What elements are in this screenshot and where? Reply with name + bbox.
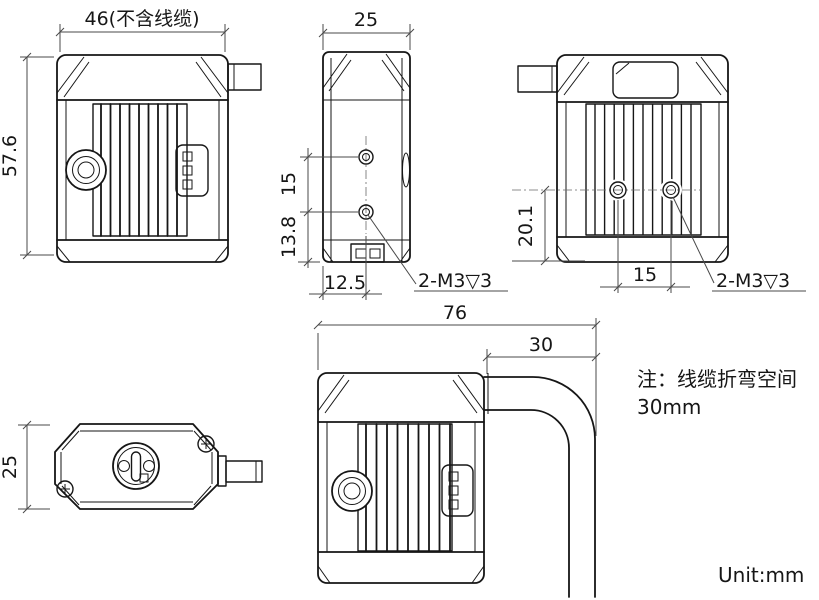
front-view: 46(不含线缆) 57.6 <box>0 8 261 262</box>
cable-bend-dim-label: 30 <box>529 334 553 356</box>
heatsink-fins <box>93 104 187 236</box>
cable-note-line2: 30mm <box>637 395 701 419</box>
hole-height-dim-label: 20.1 <box>515 205 537 247</box>
drawing-canvas: 46(不含线缆) 57.6 25 <box>0 0 819 600</box>
bottom-view: 25 15 13.8 12.5 2-M3▽3 <box>278 9 508 300</box>
dimension-drawing: 46(不含线缆) 57.6 25 <box>0 0 819 600</box>
side-view: 20.1 15 2-M3▽3 <box>512 55 806 293</box>
cable-connector-stub-left <box>518 66 557 92</box>
bottom-thread-callout: 2-M3▽3 <box>368 215 508 292</box>
cable-connector-stub <box>228 64 261 90</box>
top-depth-dim-label: 25 <box>0 455 21 479</box>
top-window <box>613 62 678 98</box>
side-pitch-dim-label: 15 <box>633 264 657 286</box>
cable-bend-dimension: 30 <box>483 334 600 374</box>
front-cable-view: 76 30 <box>314 302 600 597</box>
bottom-width-dim-label: 25 <box>354 9 378 31</box>
front-height-dim-label: 57.6 <box>0 135 21 177</box>
bottom-thread-label: 2-M3▽3 <box>418 270 492 292</box>
top-view: 25 <box>0 421 262 513</box>
front-width-dim-label: 46(不含线缆) <box>84 8 199 30</box>
overall-width-dim-label: 76 <box>443 302 467 324</box>
top-depth-dimension: 25 <box>0 421 50 513</box>
bottom-hole-chain-dimension: 15 13.8 <box>278 148 358 268</box>
mount-holes <box>359 150 373 219</box>
bottom-width-dimension: 25 <box>319 9 414 50</box>
lens-feature <box>66 150 106 190</box>
front-width-dimension: 46(不含线缆) <box>56 8 229 52</box>
unit-label: Unit:mm <box>718 563 804 587</box>
side-bump <box>403 153 410 187</box>
hole-pitch-dim-label: 15 <box>278 172 300 196</box>
center-dial-feature <box>113 443 159 489</box>
cable-connector-stub <box>218 456 262 486</box>
cable-note: 注：线缆折弯空间 30mm <box>637 367 797 419</box>
indicator-panel <box>442 465 473 516</box>
bottom-port <box>351 244 384 262</box>
top-view-body <box>55 424 262 509</box>
side-view-body <box>512 55 728 262</box>
lens-feature <box>332 471 372 511</box>
overall-width-dimension: 76 <box>314 302 600 436</box>
cable-note-line1: 注：线缆折弯空间 <box>637 367 797 391</box>
side-thread-callout: 2-M3▽3 <box>673 197 806 292</box>
hole-offset-dim-label: 12.5 <box>324 272 366 294</box>
bent-cable <box>484 373 595 597</box>
side-hole-height-dimension: 20.1 <box>512 186 585 265</box>
indicator-panel <box>176 145 208 196</box>
hole-edge-dim-label: 13.8 <box>278 216 300 258</box>
side-thread-label: 2-M3▽3 <box>716 270 790 292</box>
front-height-dimension: 57.6 <box>0 53 54 259</box>
bottom-offset-dimension: 12.5 <box>309 236 382 300</box>
